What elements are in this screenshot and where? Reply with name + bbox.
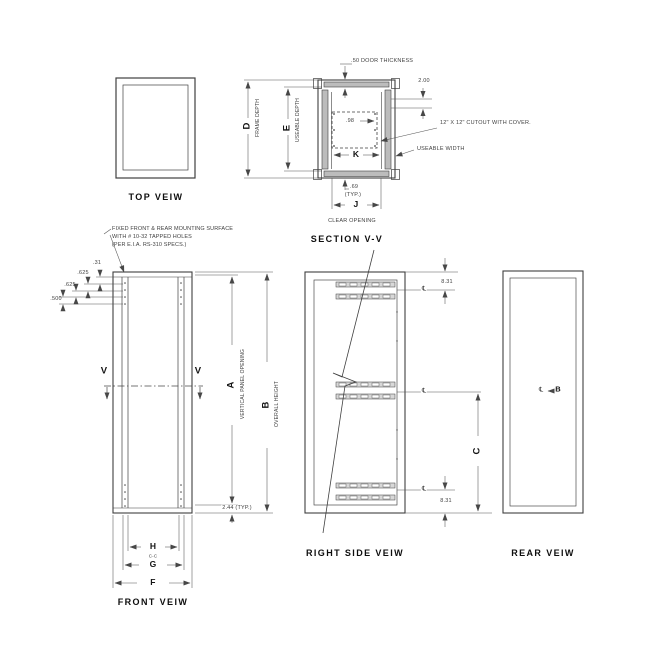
- hole-dim-625b: .625: [77, 270, 89, 276]
- mounting-note-line2: WITH # 10-32 TAPPED HOLES: [112, 234, 192, 240]
- break-line: [323, 250, 374, 533]
- dim-0-69: .69: [350, 184, 358, 190]
- useable-depth-label: USEABLE DEPTH: [296, 98, 302, 142]
- dim-h-label: H: [149, 542, 157, 552]
- top-view-outline: [116, 78, 195, 178]
- right-side-view-dimensions: [397, 258, 492, 527]
- dim-a-label: A: [227, 380, 238, 389]
- blueprint-canvas: TOP VEIW D FRAME DEPTH E USEABLE DEPTH .…: [0, 0, 650, 650]
- mounting-note-line3: (PER E.I.A. RS-310 SPECS.): [112, 242, 186, 248]
- hole-dim-500: .500: [50, 296, 62, 302]
- door-thickness-note: .50 DOOR THICKNESS: [351, 58, 413, 64]
- dim-8-31-bottom: 8.31: [440, 498, 452, 504]
- slotted-rails: [336, 282, 395, 500]
- rear-dim-b-label: B: [555, 386, 561, 395]
- mounting-holes: [124, 282, 182, 507]
- section-view-title: SECTION V-V: [311, 234, 383, 244]
- dim-g-label: G: [149, 560, 158, 570]
- right-side-view-linework: [305, 250, 405, 533]
- front-view-title: FRONT VEIW: [118, 597, 189, 607]
- section-cut-v-right: V: [195, 367, 202, 378]
- centerline-symbol-bottom: ℄: [421, 485, 427, 492]
- center-to-center-label: C-C: [149, 553, 158, 558]
- rear-centerline-symbol: ℄: [539, 386, 543, 393]
- frame-depth-label: FRAME DEPTH: [256, 99, 262, 137]
- dim-2-00: 2.00: [418, 78, 430, 84]
- hole-dim-31: .31: [93, 260, 101, 266]
- dim-k-label: K: [352, 150, 360, 160]
- right-side-view-title: RIGHT SIDE VEIW: [306, 548, 404, 558]
- rear-view-title: REAR VEIW: [511, 548, 575, 558]
- centerline-symbol-top: ℄: [421, 285, 427, 292]
- centerline-symbol-middle: ℄: [421, 387, 427, 394]
- dim-f-label: F: [149, 578, 156, 588]
- typ-note: (TYP.): [345, 192, 361, 198]
- hole-dim-625a: .625: [64, 282, 76, 288]
- dim-8-31-top: 8.31: [441, 279, 453, 285]
- dim-j-label: J: [353, 200, 360, 210]
- dim-0-98: .98: [345, 118, 355, 124]
- front-view-section-cut: [104, 386, 203, 399]
- section-cut-v-left: V: [101, 367, 108, 378]
- dim-c-label: C: [473, 446, 484, 455]
- mounting-note-line1: FIXED FRONT & REAR MOUNTING SURFACE: [112, 226, 233, 232]
- dim-e-label: E: [283, 124, 294, 133]
- useable-width-label: USEABLE WIDTH: [417, 146, 465, 152]
- dim-d-label: D: [243, 121, 254, 130]
- clear-opening-label: CLEAR OPENING: [328, 218, 376, 224]
- top-view-title: TOP VEIW: [129, 192, 184, 202]
- front-view-linework: [113, 272, 192, 513]
- section-view-linework: [314, 79, 400, 180]
- cutout-note: 12" X 12" CUTOUT WITH COVER.: [440, 120, 531, 126]
- overall-height-label: OVERALL HEIGHT: [275, 381, 281, 427]
- dim-2-44: 2.44 (TYP.): [221, 505, 253, 511]
- front-view-dimensions: [113, 272, 273, 588]
- dim-b-label: B: [262, 400, 273, 409]
- vertical-panel-opening-label: VERTICAL PANEL OPENING: [241, 349, 247, 419]
